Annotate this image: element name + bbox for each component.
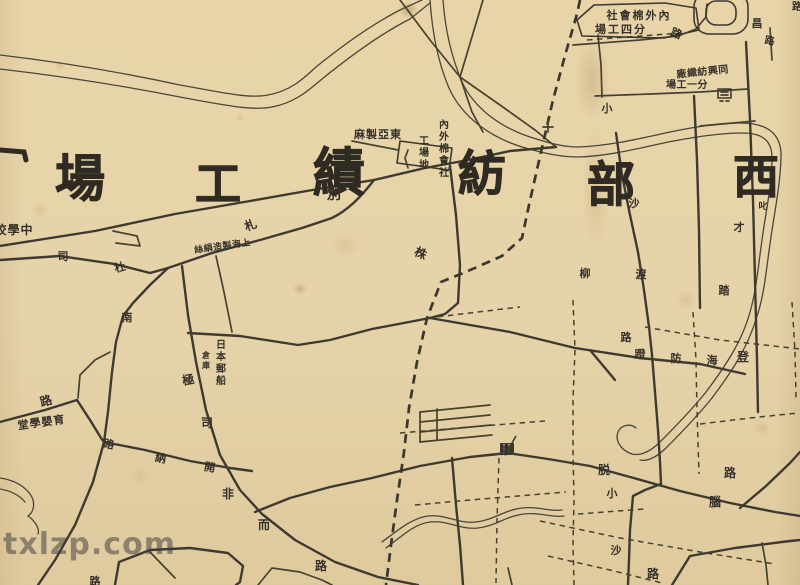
map-label: 南 [122,310,133,324]
map-title-char: 西 [733,150,779,204]
gasometer-outer-ring [694,0,748,34]
map-label: 場工四分 [595,22,647,36]
creek-meander-lower [443,0,781,460]
map-label: 康 [501,443,513,457]
map-label: 而 [258,518,270,532]
map-label-vertical: 內外棉會社 [438,118,450,179]
map-label: 株 [412,244,430,263]
map-title-char: 場 [55,150,105,208]
map-label-vertical: 工場地 [419,136,429,171]
map-label: 小 [601,101,613,115]
map-label: 杜 [113,259,127,275]
kinnear-road [104,442,252,471]
block-road-north [216,256,232,332]
crossroad-mark [543,121,553,132]
railway-sidings [420,405,492,442]
map-label: 司 [201,416,213,430]
top-fork-road-b [460,0,483,132]
boundary-layer [386,0,580,585]
map-label: 柳 [580,266,591,280]
map-label: 非 [222,486,234,501]
map-label: 路 [102,436,116,452]
map-label: 札 [241,216,258,235]
connaught-branch-ne [740,452,800,508]
lower-fork-road [0,256,168,273]
projected-road-ew-5 [700,413,798,424]
projected-road-se-2 [548,556,662,583]
map-label: 麻製亞東 [353,127,402,141]
map-label: 路 [647,566,660,581]
map-label: 海 [707,353,718,367]
bottom-creek-lower [386,514,564,548]
map-label: 腦 [709,494,721,509]
projected-road-ew-4 [578,509,645,514]
projected-road-ns-1 [573,300,575,585]
map-label: 蹬 [635,347,647,361]
map-label: 納 [154,450,167,466]
projected-road-ew-1 [428,307,520,318]
map-label: 渡 [636,267,648,281]
label-bracket [405,150,408,168]
map-label: 路 [724,465,737,480]
map-label: 路 [90,574,102,585]
map-label: 防 [671,351,682,365]
map-label: 才 [734,220,745,234]
map-label-vertical: 日本郵船 [216,339,227,387]
map-label: 踏 [719,283,731,297]
map-label: 路 [764,33,777,48]
labels-layer: 場工績紡部西校學中絲絹造製海上札司杜別株麻製亞東社會棉外內場工四分路昌路廠織紡興… [0,0,800,585]
map-title-char: 紡 [458,146,506,202]
map-label: 路 [621,330,633,344]
map-label: 昌 [752,17,763,30]
map-label: 叱 [758,200,767,212]
map-label: 絲絹造製海上 [194,236,252,256]
connector-road [78,352,110,398]
bottom-right-vertical [762,543,768,585]
map-canvas: 場工績紡部西校學中絲絹造製海上札司杜別株麻製亞東社會棉外內場工四分路昌路廠織紡興… [0,0,800,585]
suzhou-creek-lower-bank [0,3,430,108]
block-road-b [598,35,602,97]
haifang-road [430,318,745,374]
settlement-boundary-dashed [386,0,580,585]
left-creek-branch [0,489,25,502]
northeast-vertical-road [694,96,700,308]
projected-road-ns-3 [792,302,796,398]
bottom-creek-upper [382,508,562,542]
map-label: 司 [58,250,69,263]
suzhou-creek-upper-bank [0,0,422,96]
map-label: 沙 [629,197,640,210]
map-label: 別 [326,187,341,203]
jessfield-road [182,266,418,585]
top-fork-road-a [400,0,460,77]
map-label: 路 [315,558,328,573]
bottom-right-block-road [672,540,800,585]
map-label: 脱 [598,462,610,477]
projected-road-ew-3 [415,492,566,505]
map-title-char: 工 [195,157,241,211]
map-label-vertical: 倉庫 [201,350,211,370]
map-label: 沙 [611,544,622,557]
map-label: 社會棉外內 [606,8,672,22]
vintage-map-screenshot: 場工績紡部西校學中絲絹造製海上札司杜別株麻製亞東社會棉外內場工四分路昌路廠織紡興… [0,0,800,585]
left-creek [0,478,38,534]
map-label: 路 [792,0,800,13]
projected-road-ns-4 [496,458,499,583]
gasometer-inner-ring [706,1,736,25]
map-label: 極 [181,371,195,388]
watermark-text: txlzp.com [3,527,176,562]
top-fork-link [460,77,556,147]
map-label: 場工一分 [666,78,708,91]
map-label: 校學中 [0,222,34,237]
map-label: 小 [606,486,618,500]
map-label: 開 [203,460,216,475]
small-building-ne-marks [720,92,729,101]
map-label: 廠織紡興同 [676,62,730,80]
projected-roads-layer [400,33,800,585]
projected-road-ne [645,327,800,349]
projected-road-se-1 [540,521,775,564]
dock-spur [113,231,140,246]
bottom-short-vertical [508,568,512,585]
creek-end-loop [617,425,636,454]
map-label: 登 [736,349,750,364]
cut-title-stroke [0,150,26,160]
